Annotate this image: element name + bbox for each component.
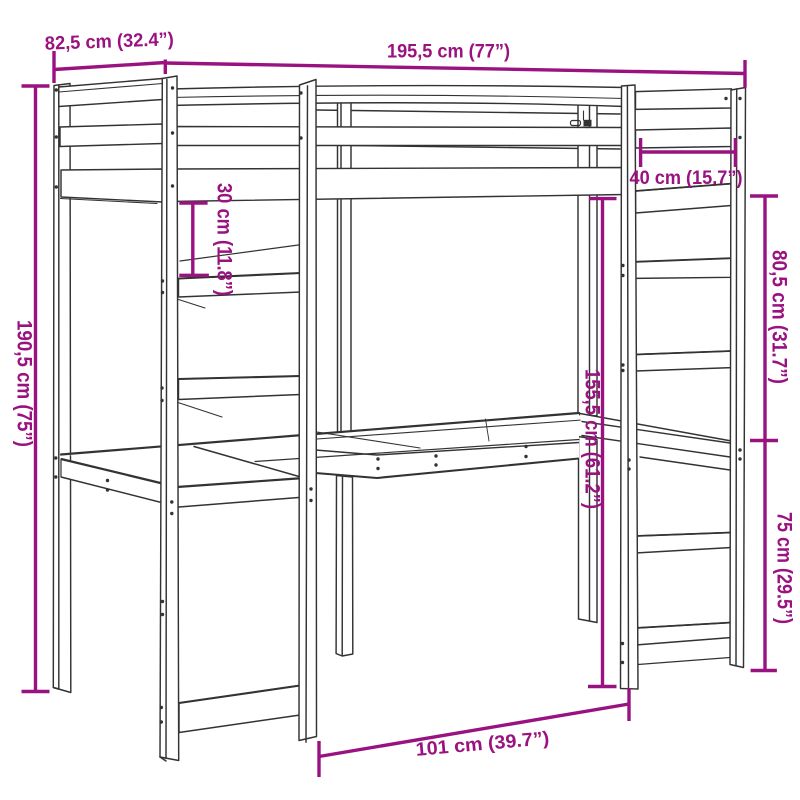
svg-text:195,5 cm (77”): 195,5 cm (77”) <box>387 42 510 63</box>
svg-text:75 cm (29.5”): 75 cm (29.5”) <box>773 512 797 624</box>
svg-text:82,5 cm (32.4”): 82,5 cm (32.4”) <box>44 29 174 54</box>
svg-text:30 cm (11.8”): 30 cm (11.8”) <box>213 183 237 296</box>
svg-text:155,5 cm (61.2”): 155,5 cm (61.2”) <box>581 369 605 509</box>
svg-text:80,5 cm (31.7”): 80,5 cm (31.7”) <box>768 250 792 384</box>
svg-text:40 cm (15.7”): 40 cm (15.7”) <box>630 168 743 189</box>
svg-text:190,5 cm (75”): 190,5 cm (75”) <box>13 320 37 447</box>
